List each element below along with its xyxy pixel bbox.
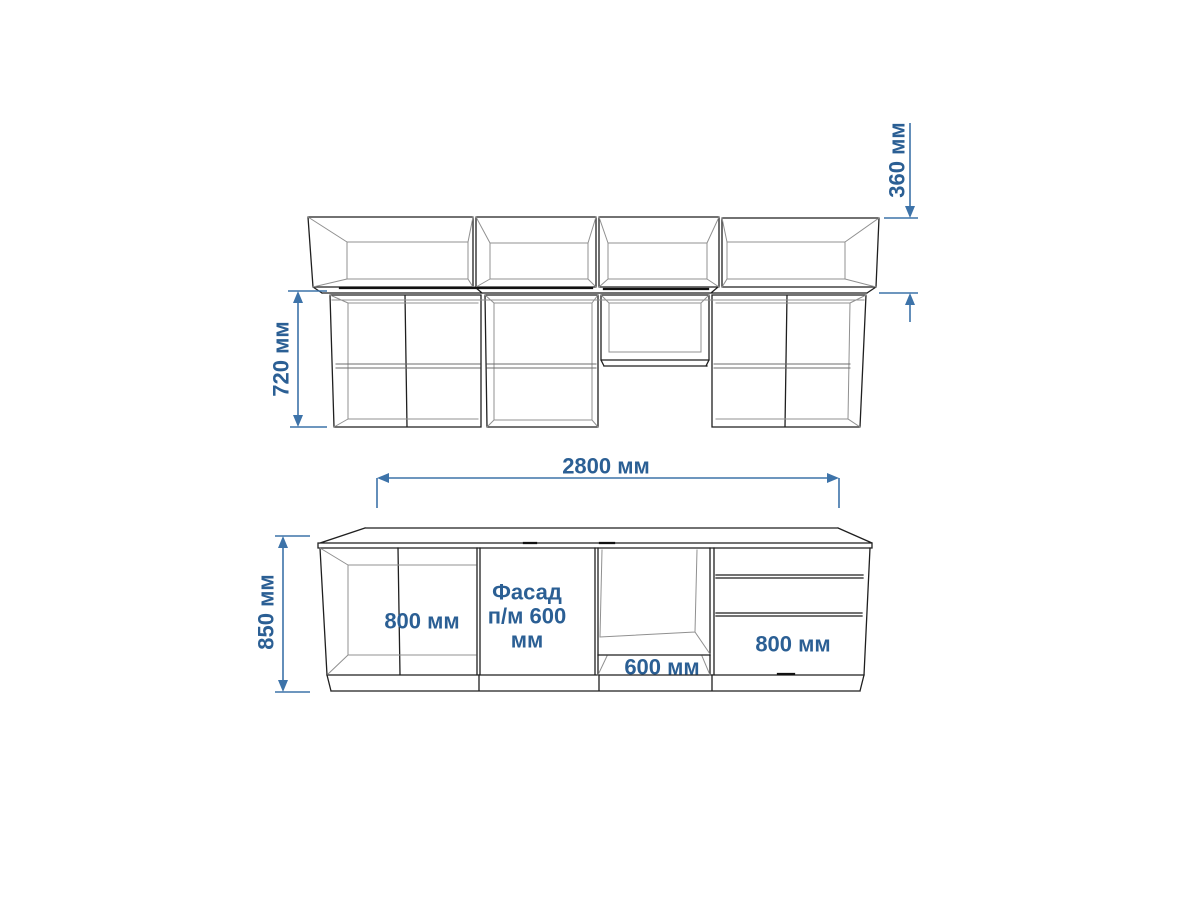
arrow-up-icon (905, 293, 915, 305)
dim-label-2800: 2800 мм (562, 454, 650, 479)
arrow-up-icon (293, 291, 303, 303)
plinth (327, 675, 864, 691)
svg-text:п/м 600: п/м 600 (488, 604, 567, 629)
label-cabinet-800-left: 800 мм (384, 609, 459, 634)
dim-360: 360 мм (879, 122, 918, 322)
arrow-down-icon (293, 415, 303, 427)
dim-label-360: 360 мм (885, 122, 910, 197)
label-facade-dishwasher: Фасад п/м 600 мм (488, 580, 567, 653)
cabinet-drawing-canvas: 360 мм 720 мм 2800 мм 850 мм 800 мм Фаса… (0, 0, 1201, 900)
kitchen-elevation-drawing: 360 мм 720 мм 2800 мм 850 мм 800 мм Фаса… (0, 0, 1201, 900)
countertop (318, 528, 872, 548)
top-boxes-accents (340, 288, 708, 289)
arrow-down-icon (278, 680, 288, 692)
svg-text:мм: мм (511, 628, 544, 653)
top-boxes-interior (308, 217, 879, 287)
arrow-down-icon (905, 206, 915, 218)
wall-cabinets-shelves (336, 364, 850, 368)
top-boxes-outline (308, 217, 879, 293)
dim-2800: 2800 мм (377, 454, 839, 509)
dim-label-850: 850 мм (254, 574, 279, 649)
wall-cabinets-view (308, 217, 879, 427)
arrow-up-icon (278, 536, 288, 548)
label-drawers-800-right: 800 мм (755, 632, 830, 657)
dim-720: 720 мм (269, 291, 328, 427)
arrow-left-icon (377, 473, 389, 483)
dimensions: 360 мм 720 мм 2800 мм 850 мм (254, 122, 919, 692)
section-labels: 800 мм Фасад п/м 600 мм 600 мм 800 мм (384, 580, 830, 680)
label-oven-600: 600 мм (624, 655, 699, 680)
arrow-right-icon (827, 473, 839, 483)
svg-text:Фасад: Фасад (492, 580, 562, 605)
wall-cabinets-outline (330, 295, 866, 427)
dim-label-720: 720 мм (269, 321, 294, 396)
dim-850: 850 мм (254, 536, 311, 692)
